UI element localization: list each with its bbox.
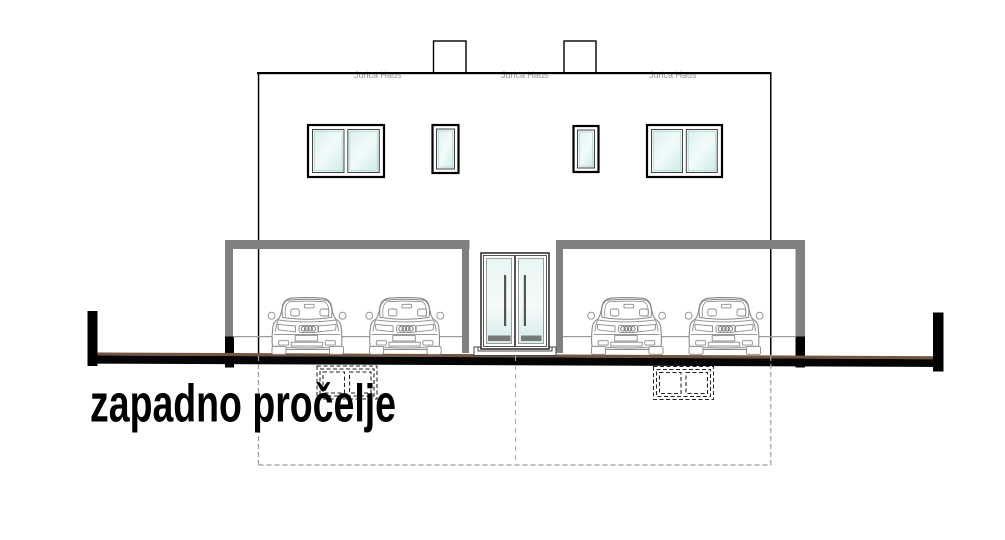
svg-text:Jurica Haus: Jurica Haus — [501, 70, 549, 80]
svg-text:Jurica Haus: Jurica Haus — [649, 70, 697, 80]
svg-text:Jurica Haus: Jurica Haus — [354, 70, 402, 80]
svg-text:zapadno pročelje: zapadno pročelje — [90, 375, 396, 434]
